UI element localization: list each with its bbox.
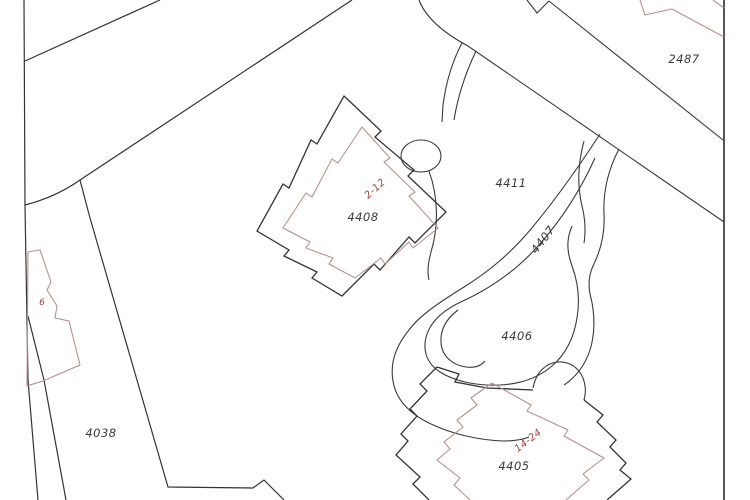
building-6-outline: [27, 250, 80, 386]
label-parcel-4405: 4405: [498, 459, 529, 473]
label-parcel-4408: 4408: [347, 210, 378, 224]
parcel-4408-outline: [257, 96, 446, 296]
label-building-6: 6: [39, 298, 45, 308]
building-2487-edge: [640, 0, 724, 37]
main-road-west-edge: [419, 0, 724, 222]
label-parcel-4038: 4038: [85, 426, 116, 440]
building-2487-corner-edge: [713, 0, 724, 8]
cul-de-sac-inner-curve: [441, 310, 485, 367]
cadastral-map: 2487 4411 4408 2-12 4407 4406 4405 14-24…: [0, 0, 750, 500]
main-road: [419, 0, 724, 222]
parcel-4405-west: [396, 367, 437, 500]
east-path-west-edge: [579, 141, 585, 243]
driveway-west-edge: [442, 43, 462, 122]
parcel-4405-top-west: [437, 367, 533, 390]
label-parcel-4406: 4406: [501, 329, 532, 343]
parcel-4405-outline: [396, 367, 631, 500]
parcel-4038-east-boundary: [80, 180, 284, 500]
parcel-4405-east: [584, 400, 631, 500]
loop-inner-edge-parcel-4406: [425, 158, 595, 385]
building-14-24-southwest: [437, 383, 492, 500]
fence-line-west: [28, 316, 66, 500]
label-parcel-2487: 2487: [668, 52, 699, 66]
label-building-14-24: 14-24: [513, 427, 544, 455]
north-driveway: [401, 43, 476, 280]
map-labels: 2487 4411 4408 2-12 4407 4406 4405 14-24…: [39, 52, 700, 473]
turning-bulb-north: [401, 140, 441, 172]
northwest-diagonal-boundary: [25, 0, 160, 61]
driveway-east-edge: [454, 51, 476, 120]
building-14-24-northeast: [492, 383, 604, 500]
turning-bulb-south: [533, 362, 585, 400]
label-parcel-4411: 4411: [495, 176, 526, 190]
road-edge-diagonal: [25, 0, 352, 205]
building-2487-outline: [640, 0, 724, 37]
cadastral-map-stage: 2487 4411 4408 2-12 4407 4406 4405 14-24…: [0, 0, 750, 500]
label-building-2-12: 2-12: [363, 177, 388, 201]
main-road-edge-notch: [527, 0, 549, 13]
west-boundary-lines: [24, 0, 352, 500]
west-vertical-boundary: [24, 0, 38, 500]
